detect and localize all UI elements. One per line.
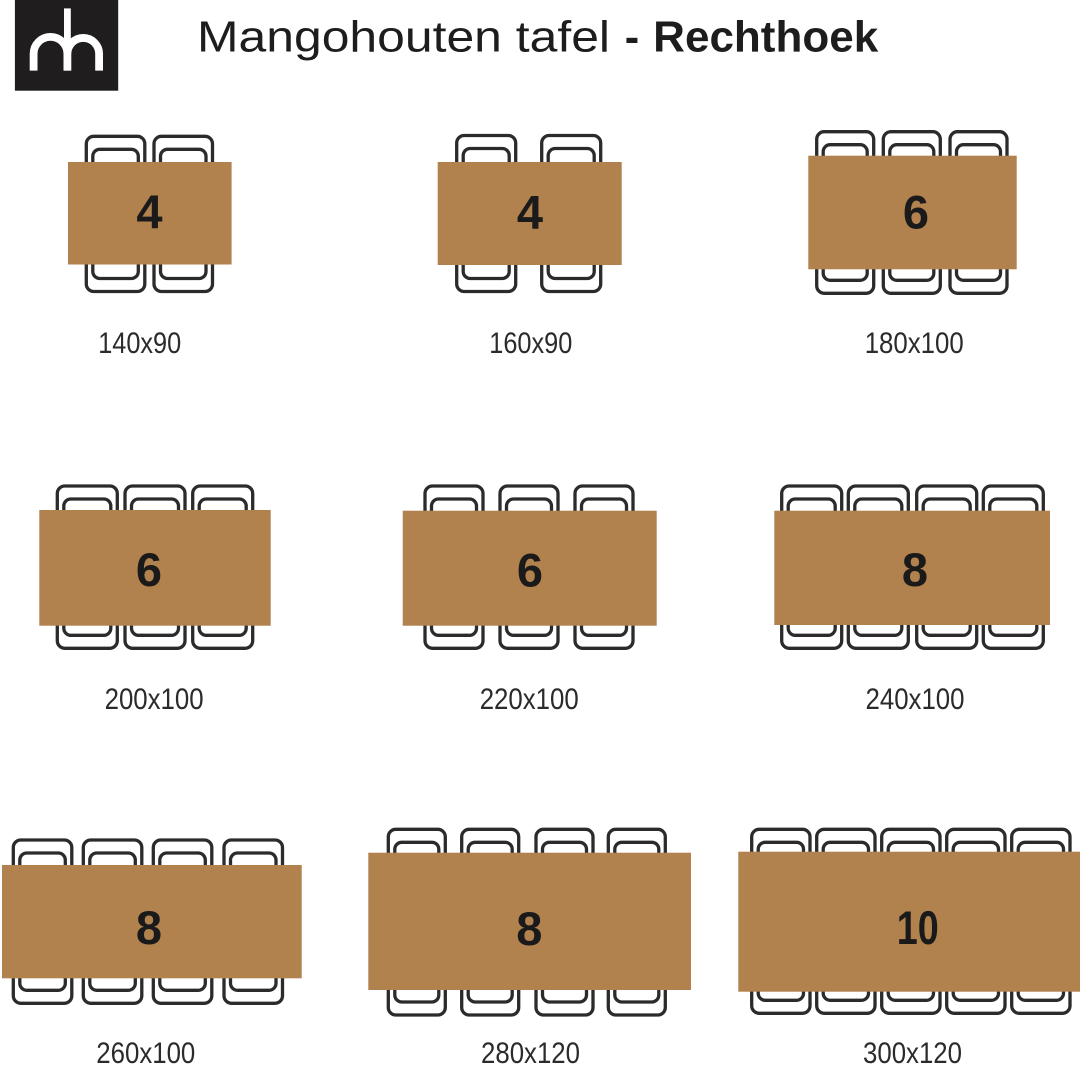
svg-text:280x120: 280x120 xyxy=(481,1037,580,1070)
svg-text:200x100: 200x100 xyxy=(105,683,204,716)
svg-text:8: 8 xyxy=(136,901,162,954)
svg-text:240x100: 240x100 xyxy=(866,683,965,716)
svg-text:160x90: 160x90 xyxy=(489,327,572,360)
svg-text:10: 10 xyxy=(897,901,939,954)
svg-text:8: 8 xyxy=(516,902,542,955)
svg-text:-: - xyxy=(625,13,639,61)
svg-text:300x120: 300x120 xyxy=(863,1037,962,1070)
svg-text:Rechthoek: Rechthoek xyxy=(653,13,879,61)
svg-text:6: 6 xyxy=(903,185,929,238)
svg-text:220x100: 220x100 xyxy=(480,683,579,716)
svg-text:260x100: 260x100 xyxy=(96,1037,195,1070)
svg-text:8: 8 xyxy=(902,543,928,596)
svg-text:6: 6 xyxy=(136,543,162,596)
svg-text:Mangohouten tafel: Mangohouten tafel xyxy=(197,13,610,61)
svg-text:4: 4 xyxy=(136,185,162,238)
svg-text:6: 6 xyxy=(517,544,543,597)
svg-text:4: 4 xyxy=(517,186,543,239)
svg-text:180x100: 180x100 xyxy=(865,327,964,360)
svg-text:140x90: 140x90 xyxy=(98,327,181,360)
